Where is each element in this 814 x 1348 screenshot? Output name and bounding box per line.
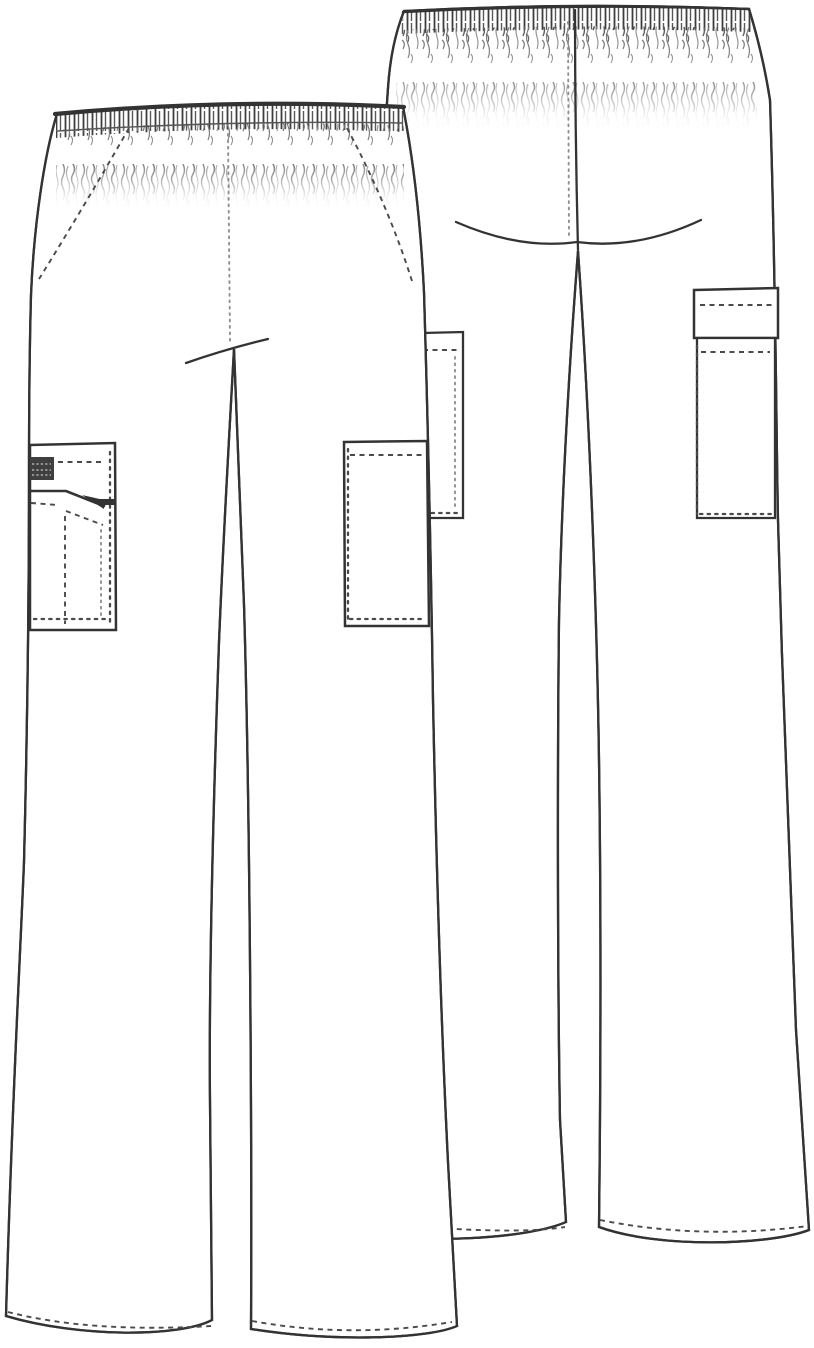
front-view-drawing: [6, 103, 457, 1337]
back-waistband-fade: [392, 22, 764, 132]
back-waistband: [392, 6, 764, 132]
scrub-pants-flat-sketch: [0, 0, 814, 1348]
back-right-pocket-flap: [694, 288, 778, 338]
brand-label-patch: [30, 457, 54, 480]
front-left-cargo-pocket: [30, 443, 116, 630]
front-right-patch-pocket: [344, 441, 429, 626]
back-right-cargo-pocket: [694, 288, 778, 518]
product-illustration-page: [0, 0, 814, 1348]
front-left-pocket-bartack: [100, 499, 116, 505]
front-waistband: [54, 103, 406, 210]
back-right-pocket-body: [697, 338, 775, 518]
front-silhouette: [6, 104, 457, 1338]
front-right-pocket-body: [344, 441, 429, 626]
